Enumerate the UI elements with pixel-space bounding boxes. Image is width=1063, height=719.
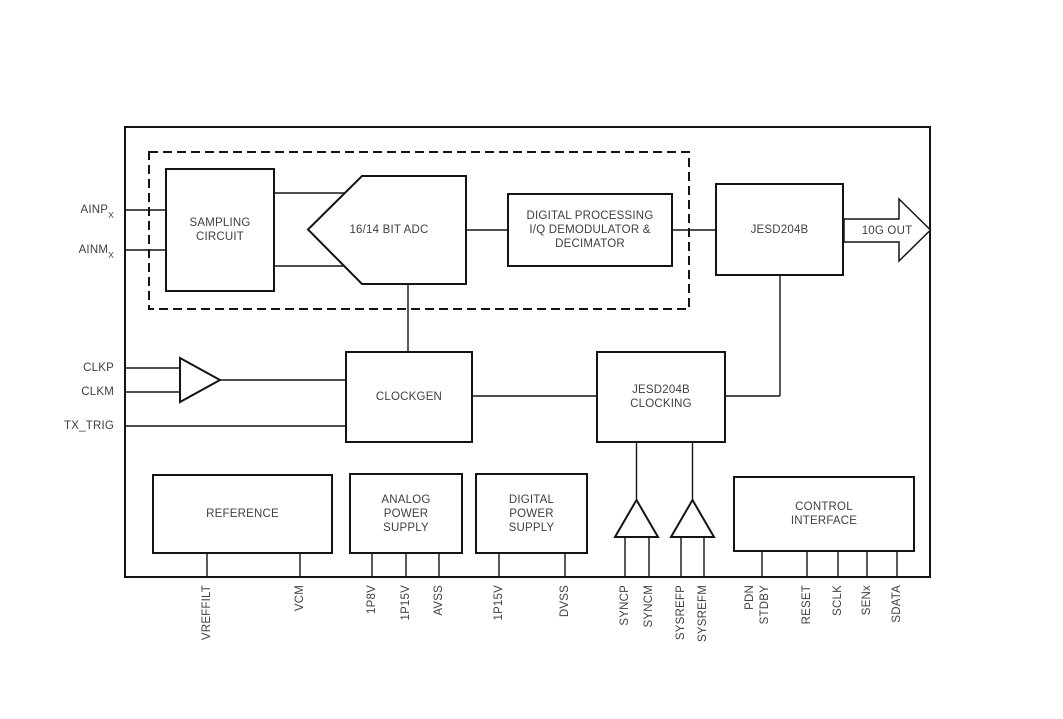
block-label: CLOCKGEN xyxy=(376,390,442,404)
block-label: DIGITAL PROCESSING I/Q DEMODULATOR & DEC… xyxy=(527,209,654,251)
input-label-tx-trig: TX_TRIG xyxy=(64,418,114,434)
pin-label-sysrefm: SYSREFM xyxy=(696,585,710,685)
clock-buffer-icon xyxy=(180,358,220,402)
pin-label-vcm: VCM xyxy=(293,585,307,685)
block-analog-power-supply: ANALOG POWER SUPPLY xyxy=(349,473,463,554)
output-arrow-icon xyxy=(844,199,931,261)
pin-label-sclk: SCLK xyxy=(831,585,845,685)
pin-label-senx: SENx xyxy=(860,585,874,685)
pin-label-pdn: PDN xyxy=(743,585,757,685)
pin-label-avss: AVSS xyxy=(432,585,446,685)
block-sampling-circuit: SAMPLING CIRCUIT xyxy=(165,168,275,292)
block-label: ANALOG POWER SUPPLY xyxy=(381,493,430,535)
pin-label-syncm: SYNCM xyxy=(642,585,656,685)
adc-pentagon xyxy=(308,176,466,284)
input-label-clkm: CLKM xyxy=(81,384,114,400)
pin-label-stdby: STDBY xyxy=(758,585,772,685)
pin-label-vreffilt: VREFFILT xyxy=(200,585,214,685)
pin-label-sdata: SDATA xyxy=(890,585,904,685)
pin-label-1p15v-analog: 1P15V xyxy=(399,585,413,685)
sync-buffer-icon xyxy=(615,500,658,537)
pin-label-sysrefp: SYSREFP xyxy=(674,585,688,685)
block-diagram: SAMPLING CIRCUIT DIGITAL PROCESSING I/Q … xyxy=(0,0,1063,719)
block-digital-processing: DIGITAL PROCESSING I/Q DEMODULATOR & DEC… xyxy=(507,193,673,267)
input-label-ainm: AINMX xyxy=(79,242,114,258)
block-label: JESD204B CLOCKING xyxy=(630,383,692,411)
pin-label-1p8v: 1P8V xyxy=(365,585,379,685)
block-clockgen: CLOCKGEN xyxy=(345,351,473,443)
pin-label-1p15v-digital: 1P15V xyxy=(492,585,506,685)
pin-label-reset: RESET xyxy=(800,585,814,685)
block-control-interface: CONTROL INTERFACE xyxy=(733,476,915,552)
block-label: DIGITAL POWER SUPPLY xyxy=(509,493,555,535)
pin-label-syncp: SYNCP xyxy=(618,585,632,685)
block-jesd204b-clocking: JESD204B CLOCKING xyxy=(596,351,726,443)
block-digital-power-supply: DIGITAL POWER SUPPLY xyxy=(475,473,588,554)
pin-label-dvss: DVSS xyxy=(558,585,572,685)
block-label: REFERENCE xyxy=(206,507,279,521)
block-label: SAMPLING CIRCUIT xyxy=(189,216,250,244)
block-label: CONTROL INTERFACE xyxy=(791,500,857,528)
block-reference: REFERENCE xyxy=(152,474,333,554)
input-label-ainp: AINPX xyxy=(80,202,114,218)
block-label: JESD204B xyxy=(751,223,809,237)
sysref-buffer-icon xyxy=(671,500,714,537)
block-jesd204b: JESD204B xyxy=(715,183,844,276)
input-label-clkp: CLKP xyxy=(83,360,114,376)
